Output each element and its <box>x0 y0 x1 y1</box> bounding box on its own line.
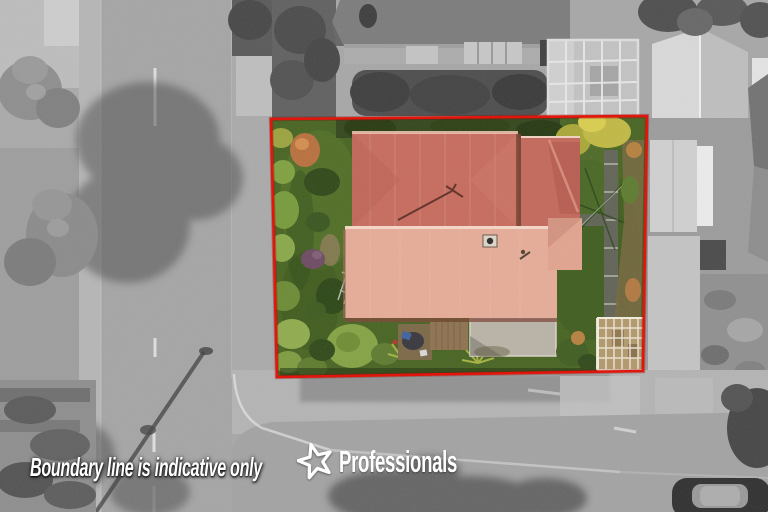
disclaimer-text: Boundary line is indicative only <box>30 452 262 483</box>
brand-logo: Professionals <box>297 443 536 480</box>
film-grain <box>0 0 768 512</box>
star-icon <box>297 443 334 480</box>
aerial-photo-scene <box>0 0 768 512</box>
brand-name: Professionals <box>339 446 457 477</box>
listing-aerial-photo: Boundary line is indicative only Profess… <box>0 0 768 512</box>
